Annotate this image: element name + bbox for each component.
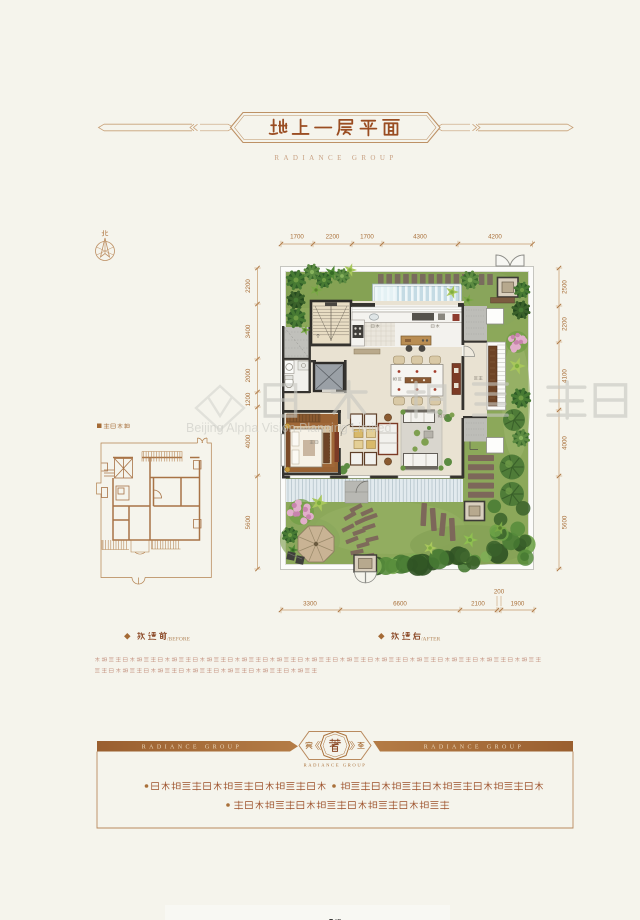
svg-text:RADIANCE GROUP: RADIANCE GROUP <box>424 745 524 751</box>
svg-text:1200: 1200 <box>245 392 252 406</box>
svg-text:1700: 1700 <box>360 234 374 241</box>
svg-text:3400: 3400 <box>245 324 252 338</box>
svg-text:2200: 2200 <box>562 317 569 331</box>
svg-text:3300: 3300 <box>303 601 317 608</box>
svg-text:4000: 4000 <box>562 436 569 450</box>
svg-text:6600: 6600 <box>393 601 407 608</box>
svg-text:4300: 4300 <box>413 234 427 241</box>
svg-text:1900: 1900 <box>511 601 525 608</box>
svg-text:/AFTER: /AFTER <box>421 637 441 643</box>
svg-text:2200: 2200 <box>245 279 252 293</box>
svg-text:5600: 5600 <box>562 515 569 529</box>
svg-text:1700: 1700 <box>290 234 304 241</box>
svg-text:RADIANCE GROUP: RADIANCE GROUP <box>274 154 397 162</box>
svg-text:RADIANCE GROUP: RADIANCE GROUP <box>142 745 242 751</box>
svg-text:4200: 4200 <box>488 234 502 241</box>
svg-text:4000: 4000 <box>245 434 252 448</box>
svg-text:5600: 5600 <box>245 515 252 529</box>
svg-text:2100: 2100 <box>471 601 485 608</box>
svg-text:2500: 2500 <box>562 280 569 294</box>
svg-text:RADIANCE GROUP: RADIANCE GROUP <box>304 763 367 768</box>
svg-text:Beijing Alpha Vision Planning: Beijing Alpha Vision Planning Limited <box>186 421 392 435</box>
svg-text:/BEFORE: /BEFORE <box>167 637 191 643</box>
svg-text:200: 200 <box>494 589 505 596</box>
svg-text:2000: 2000 <box>245 368 252 382</box>
svg-text:2200: 2200 <box>326 234 340 241</box>
